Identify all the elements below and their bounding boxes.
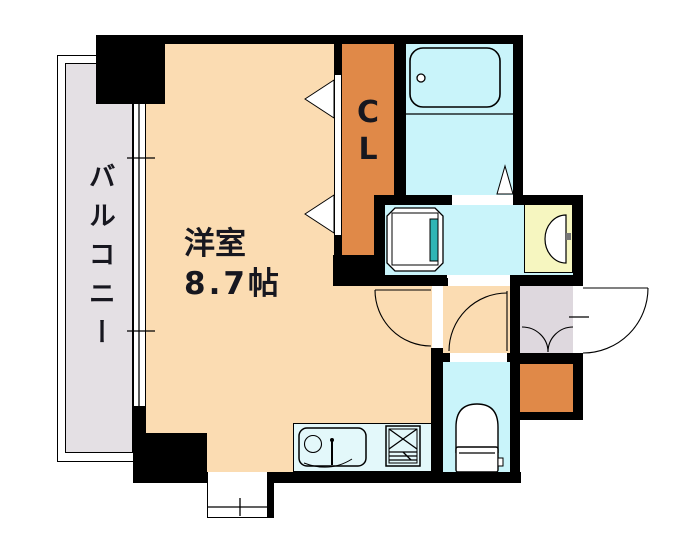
toilet-flush-handle-icon: [498, 458, 503, 466]
room-door-arc: [375, 290, 431, 346]
balcony-label: バルコニー: [82, 162, 116, 392]
shoe-cabinet-door-right: [548, 327, 573, 352]
room-door-swing: [375, 290, 431, 346]
toilet-tank-icon: [456, 447, 498, 472]
shoe-cabinet-door-left: [522, 327, 548, 352]
washbasin-faucet-icon: [566, 233, 571, 240]
floor-plan: バルコニー 洋室 8.7帖 C L: [0, 0, 676, 557]
toilet-bowl-icon: [456, 404, 498, 453]
room-size-text: 8.7帖: [184, 264, 282, 304]
toilet-door-swing: [449, 291, 507, 351]
room-name-text: 洋室: [184, 224, 282, 264]
closet-label-c: C: [342, 94, 394, 131]
entrance-door-arc: [583, 288, 648, 353]
entrance-door-swing: [583, 288, 648, 353]
washbasin-bowl-icon: [545, 215, 566, 263]
washer-drain-accent: [430, 219, 438, 261]
closet-bifold-wedge-bottom-icon: [305, 195, 334, 233]
sink-drain-icon: [305, 436, 322, 453]
bathtub-drain-icon: [417, 74, 425, 82]
sink-faucet-head: [330, 438, 334, 442]
closet-bifold-wedge-top-icon: [305, 80, 334, 118]
closet-label-l: L: [342, 131, 394, 168]
bathroom-door-wedge-icon: [497, 166, 513, 194]
stove-icon: [386, 426, 420, 466]
closet-label: C L: [342, 94, 394, 168]
toilet-door-arc: [449, 293, 507, 351]
room-label: 洋室 8.7帖: [184, 224, 282, 304]
